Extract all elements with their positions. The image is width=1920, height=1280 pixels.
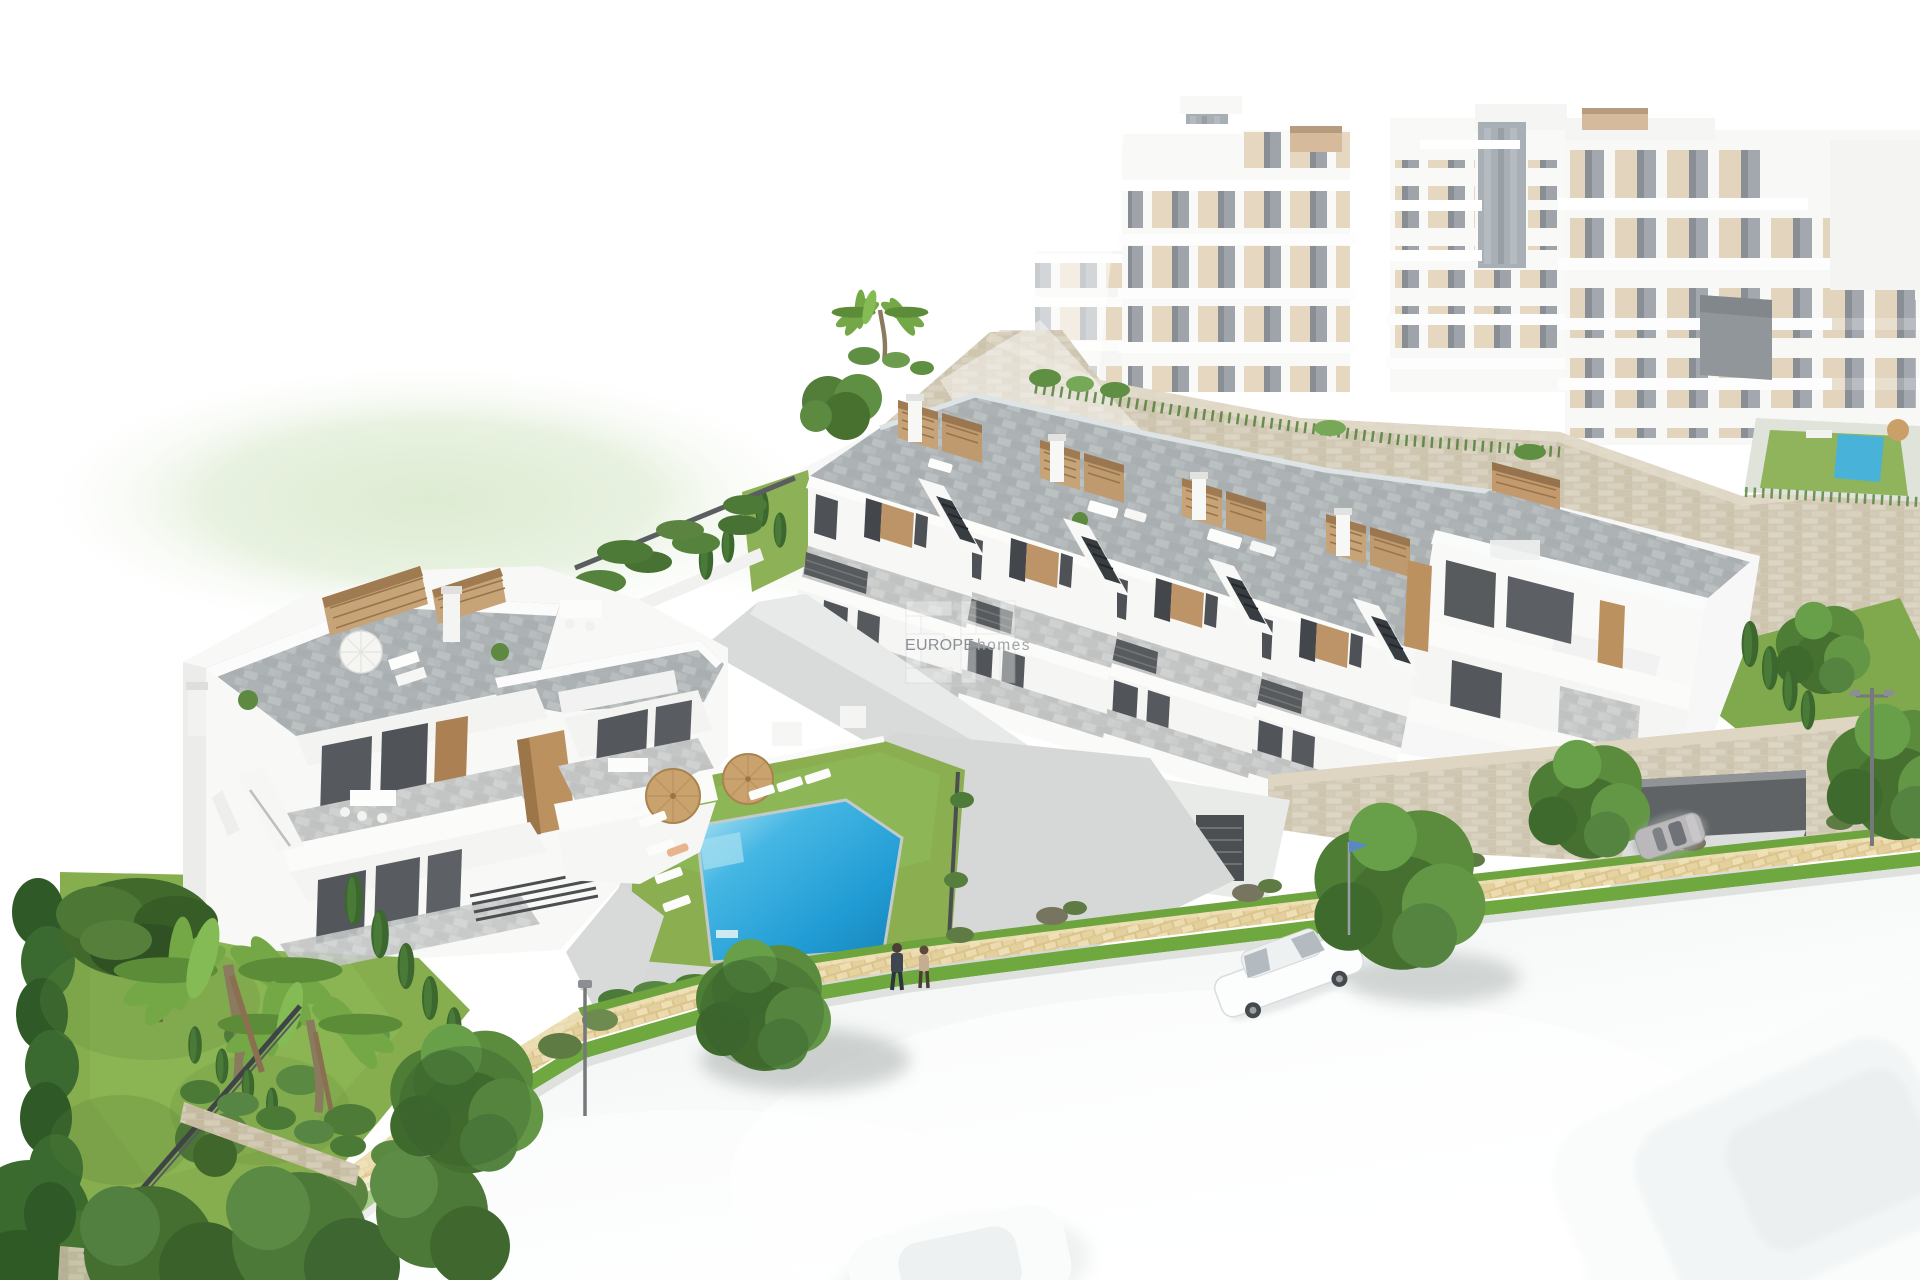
svg-text:homes: homes — [977, 637, 1031, 654]
svg-text:EUROPE: EUROPE — [905, 637, 974, 654]
